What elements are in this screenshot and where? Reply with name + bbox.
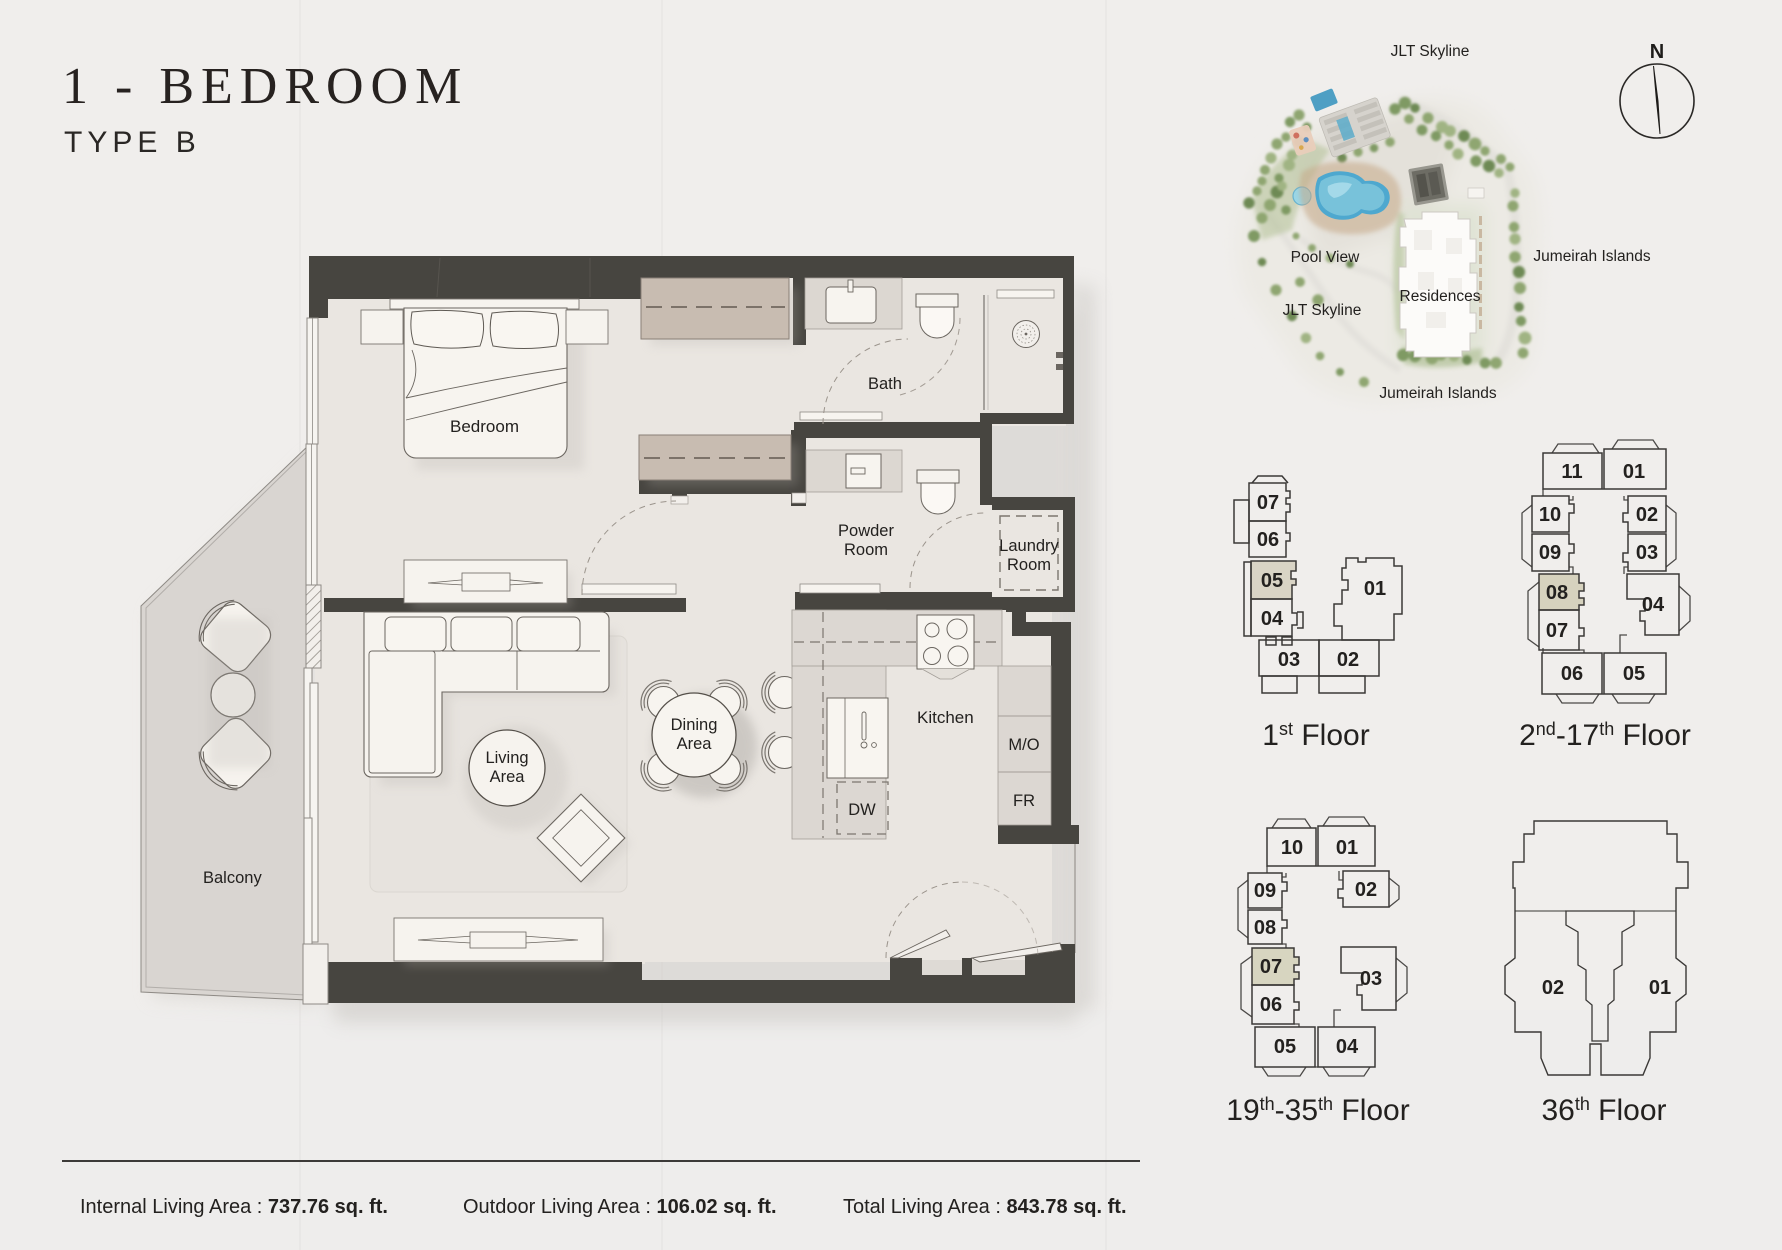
- svg-text:Room: Room: [844, 541, 888, 559]
- svg-text:M/O: M/O: [1008, 736, 1039, 754]
- svg-text:08: 08: [1254, 917, 1276, 939]
- svg-text:FR: FR: [1013, 792, 1035, 810]
- svg-text:36th Floor: 36th Floor: [1541, 1094, 1666, 1127]
- svg-text:06: 06: [1257, 529, 1279, 551]
- svg-text:04: 04: [1261, 608, 1284, 630]
- svg-text:N: N: [1650, 41, 1664, 63]
- svg-text:JLT Skyline: JLT Skyline: [1391, 43, 1470, 60]
- svg-text:Bedroom: Bedroom: [450, 417, 519, 436]
- svg-text:Powder: Powder: [838, 522, 894, 540]
- svg-text:02: 02: [1355, 879, 1377, 901]
- svg-text:Dining: Dining: [671, 716, 718, 734]
- svg-text:04: 04: [1336, 1036, 1359, 1058]
- svg-text:01: 01: [1336, 837, 1358, 859]
- svg-text:Balcony: Balcony: [203, 869, 262, 887]
- svg-text:TYPE B: TYPE B: [64, 126, 201, 159]
- svg-text:10: 10: [1281, 837, 1303, 859]
- svg-text:1st Floor: 1st Floor: [1262, 719, 1369, 752]
- svg-text:06: 06: [1260, 994, 1282, 1016]
- svg-text:Residences: Residences: [1400, 288, 1481, 305]
- svg-text:JLT Skyline: JLT Skyline: [1283, 302, 1362, 319]
- svg-text:Area: Area: [677, 735, 713, 753]
- svg-text:Internal Living Area : 737.76: Internal Living Area : 737.76 sq. ft.: [80, 1196, 388, 1218]
- svg-text:10: 10: [1539, 504, 1561, 526]
- svg-text:DW: DW: [848, 801, 876, 819]
- svg-text:Kitchen: Kitchen: [917, 708, 974, 727]
- svg-text:07: 07: [1546, 620, 1568, 642]
- svg-text:19th-35th Floor: 19th-35th Floor: [1226, 1094, 1409, 1127]
- svg-text:01: 01: [1364, 578, 1386, 600]
- svg-text:Area: Area: [490, 768, 526, 786]
- svg-text:Bath: Bath: [868, 375, 902, 393]
- svg-text:1 - BEDROOM: 1 - BEDROOM: [62, 58, 468, 115]
- svg-text:Jumeirah Islands: Jumeirah Islands: [1533, 248, 1650, 265]
- svg-text:Total Living Area : 843.78 sq.: Total Living Area : 843.78 sq. ft.: [843, 1196, 1127, 1218]
- svg-text:Laundry: Laundry: [999, 537, 1059, 555]
- svg-text:08: 08: [1546, 582, 1568, 604]
- svg-text:Jumeirah Islands: Jumeirah Islands: [1379, 385, 1496, 402]
- svg-text:Outdoor Living Area : 106.02 s: Outdoor Living Area : 106.02 sq. ft.: [463, 1196, 777, 1218]
- svg-text:06: 06: [1561, 663, 1583, 685]
- svg-text:09: 09: [1254, 880, 1276, 902]
- svg-text:01: 01: [1649, 977, 1671, 999]
- svg-text:03: 03: [1278, 649, 1300, 671]
- svg-text:Living: Living: [485, 749, 528, 767]
- svg-text:07: 07: [1257, 492, 1279, 514]
- svg-text:02: 02: [1636, 504, 1658, 526]
- svg-text:11: 11: [1561, 461, 1582, 483]
- svg-text:02: 02: [1542, 977, 1564, 999]
- svg-text:04: 04: [1642, 594, 1665, 616]
- svg-text:01: 01: [1623, 461, 1645, 483]
- svg-text:07: 07: [1260, 956, 1282, 978]
- svg-text:Room: Room: [1007, 556, 1051, 574]
- svg-text:05: 05: [1623, 663, 1645, 685]
- svg-text:03: 03: [1360, 968, 1382, 990]
- svg-text:02: 02: [1337, 649, 1359, 671]
- svg-text:03: 03: [1636, 542, 1658, 564]
- svg-text:05: 05: [1274, 1036, 1296, 1058]
- svg-text:Pool View: Pool View: [1291, 249, 1360, 266]
- svg-text:05: 05: [1261, 570, 1283, 592]
- svg-text:09: 09: [1539, 542, 1561, 564]
